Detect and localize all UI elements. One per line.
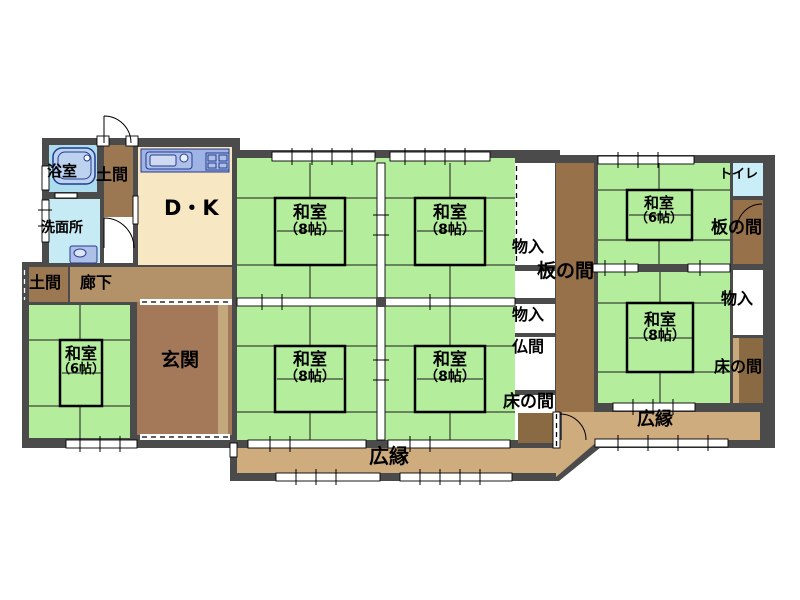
window [272, 152, 375, 161]
floorplan-drawing [0, 0, 800, 600]
room-label-washitsu8-sw: 和室 （8帖） [273, 351, 347, 385]
room-label-doma-top: 土間 [96, 167, 128, 184]
window [66, 440, 137, 448]
room-label-itanoma-mid: 板の間 [537, 262, 594, 282]
room-label-washitsu8-right: 和室 （8帖） [625, 311, 695, 344]
room-label-tokonoma-right: 床の間 [714, 359, 762, 376]
room-label-dk: D・K [164, 197, 219, 219]
center-post [376, 297, 386, 307]
entry-door-jamb [126, 136, 138, 146]
room-label-washroom: 洗面所 [41, 221, 83, 236]
fusuma-partition [377, 163, 385, 298]
room-itanoma-mid-floor [556, 163, 594, 412]
fusuma-partition [688, 264, 730, 272]
room-label-tokonoma-mid: 床の間 [503, 394, 554, 412]
room-label-bath: 浴室 [47, 164, 77, 180]
room-label-itanoma-right: 板の間 [711, 220, 762, 238]
entry-door-jamb [97, 136, 109, 146]
fusuma-partition [593, 264, 638, 272]
room-label-washitsu6-right: 和室 （6帖） [625, 194, 693, 226]
room-label-washitsu8-ne: 和室 （8帖） [413, 204, 487, 238]
room-label-monoire-right: 物入 [721, 291, 753, 308]
room-label-monoire-mid-lower: 物入 [512, 307, 544, 324]
doma-door-area [104, 217, 133, 263]
room-label-butsuma: 仏間 [512, 339, 544, 356]
window [400, 473, 512, 481]
window [230, 443, 237, 457]
genkan-step-strip [218, 302, 228, 435]
fusuma-partition [377, 306, 385, 440]
shoji-row [248, 440, 366, 448]
room-label-genkan: 玄関 [161, 351, 199, 371]
window [276, 473, 380, 481]
room-label-corridor: 廊下 [80, 275, 112, 292]
room-label-washitsu6-left: 和室 （6帖） [50, 345, 112, 377]
room-label-hiroen-east: 広縁 [637, 411, 673, 430]
floorplan-canvas: 浴室 土間 D・K 洗面所 土間 廊下 玄関 和室 （6帖） 和室 （8帖） 和… [0, 0, 800, 600]
room-label-hiroen-south: 広縁 [369, 446, 409, 467]
room-label-washitsu8-se: 和室 （8帖） [413, 351, 487, 385]
room-label-toilet: トイレ [719, 168, 758, 182]
room-label-doma-lower: 土間 [29, 275, 61, 292]
window [598, 156, 694, 164]
room-label-monoire-mid-upper: 物入 [512, 239, 544, 256]
room-label-washitsu8-nw: 和室 （8帖） [273, 204, 347, 238]
room-tokonoma-mid-floor [518, 413, 555, 443]
